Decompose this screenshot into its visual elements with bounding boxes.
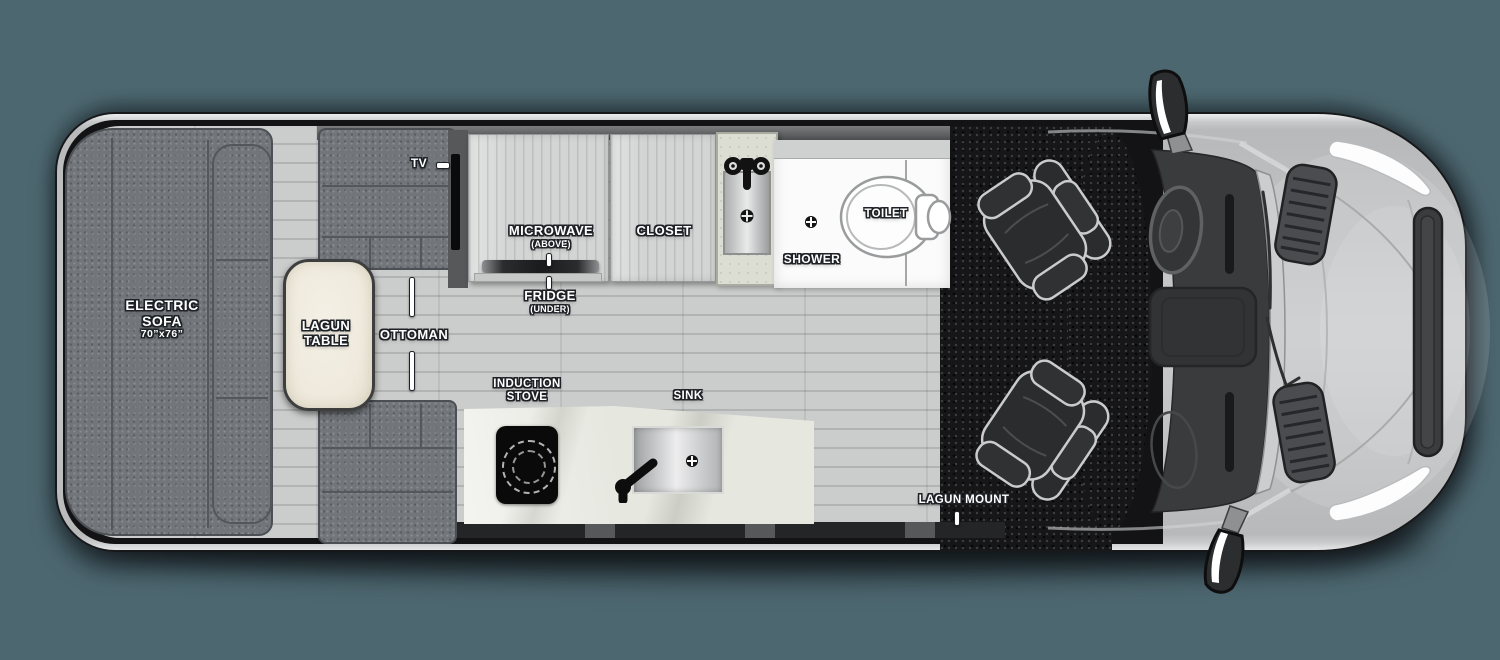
fridge-label-name: FRIDGE bbox=[524, 289, 576, 304]
closet-cabinet bbox=[610, 134, 716, 282]
shower-wall-band bbox=[774, 140, 950, 159]
shower-drain-icon bbox=[805, 216, 817, 228]
induction-stove-label: INDUCTION STOVE bbox=[493, 378, 561, 404]
sofa-seam bbox=[216, 397, 268, 399]
microwave-label-name: MICROWAVE bbox=[509, 224, 593, 239]
bath-vanity bbox=[716, 132, 778, 286]
ottoman-label: OTTOMAN bbox=[380, 328, 448, 343]
lagun-table-label-line2: TABLE bbox=[302, 334, 350, 349]
tv-label: TV bbox=[411, 157, 427, 170]
bench-seam bbox=[420, 404, 422, 447]
bath-sink bbox=[718, 134, 776, 284]
bench-seam bbox=[322, 185, 453, 187]
bench-seam bbox=[369, 236, 371, 268]
lagun-table-label-line1: LAGUN bbox=[302, 319, 350, 334]
induction-stove-label-line2: STOVE bbox=[493, 391, 561, 404]
bath-sink-drain bbox=[741, 210, 754, 223]
kitchen-faucet-icon bbox=[609, 447, 665, 503]
fridge-step bbox=[474, 273, 602, 282]
defroster-vent bbox=[1225, 194, 1234, 274]
ottoman-tick-top bbox=[409, 277, 415, 317]
dinette-bench-top bbox=[318, 128, 457, 270]
sink-label: SINK bbox=[673, 390, 702, 403]
front-grille-inner bbox=[1421, 216, 1434, 448]
electric-sofa-label: ELECTRIC SOFA 70”x76” bbox=[125, 298, 198, 341]
galley-bottom-wall bbox=[455, 522, 1005, 538]
electric-sofa-label-line1: ELECTRIC bbox=[125, 298, 198, 314]
stove-burner-icon bbox=[512, 450, 546, 484]
bench-seam bbox=[322, 491, 453, 493]
closet-label: CLOSET bbox=[636, 224, 691, 239]
fridge-vent bbox=[482, 260, 599, 273]
electric-sofa-dimensions: 70”x76” bbox=[125, 329, 198, 341]
kitchen-sink-drain-icon bbox=[686, 455, 698, 467]
bench-seam bbox=[322, 236, 453, 238]
sofa-seam bbox=[111, 138, 113, 530]
fridge-label-note: (UNDER) bbox=[524, 304, 576, 314]
fridge-label: FRIDGE (UNDER) bbox=[524, 289, 576, 314]
shower-label: SHOWER bbox=[784, 253, 840, 266]
microwave-label: MICROWAVE (ABOVE) bbox=[509, 224, 593, 249]
induction-stove bbox=[496, 426, 558, 504]
bench-seam bbox=[369, 404, 371, 447]
defroster-vent bbox=[1225, 392, 1234, 472]
floorplan-stage: ELECTRIC SOFA 70”x76” LAGUN TABLE OTTOMA… bbox=[0, 0, 1500, 660]
bench-seam bbox=[420, 236, 422, 268]
lagun-mount-tick bbox=[954, 511, 960, 526]
tv-screen bbox=[451, 154, 460, 250]
sofa-seam bbox=[216, 259, 268, 261]
side-mirror-top bbox=[1150, 71, 1192, 154]
induction-stove-label-line1: INDUCTION bbox=[493, 378, 561, 391]
electric-sofa-label-line2: SOFA bbox=[125, 314, 198, 330]
tv-pointer-dash bbox=[436, 162, 450, 169]
microwave-tick bbox=[546, 253, 552, 267]
bench-seam bbox=[322, 447, 453, 449]
sofa-seam bbox=[207, 140, 209, 528]
lagun-mount-label: LAGUN MOUNT bbox=[919, 494, 1010, 507]
sofa-front-cushion bbox=[212, 144, 272, 524]
side-mirror-bottom bbox=[1205, 506, 1248, 592]
hood-highlight bbox=[1320, 206, 1470, 456]
toilet-label: TOILET bbox=[864, 208, 907, 221]
ottoman-tick-bottom bbox=[409, 351, 415, 391]
dinette-bench-bottom bbox=[318, 400, 457, 544]
lagun-table-label: LAGUN TABLE bbox=[302, 319, 350, 348]
microwave-label-note: (ABOVE) bbox=[509, 239, 593, 249]
